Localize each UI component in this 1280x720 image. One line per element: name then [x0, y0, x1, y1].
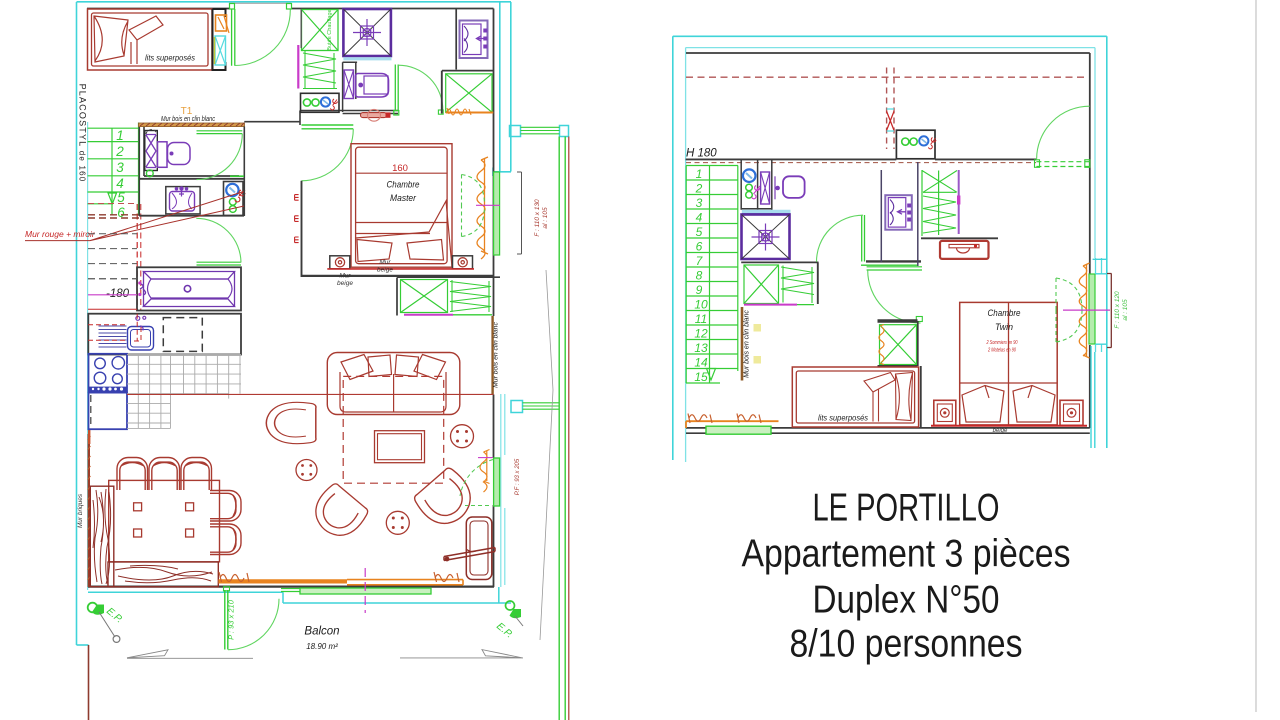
svg-text:2 Matelas en 90: 2 Matelas en 90 — [987, 348, 1016, 354]
svg-text:1: 1 — [116, 128, 124, 143]
svg-text:12: 12 — [694, 327, 708, 341]
svg-text:Butée Chauffage: Butée Chauffage — [327, 9, 333, 50]
svg-text:P.F : 93 x 205: P.F : 93 x 205 — [515, 458, 521, 495]
svg-text:4: 4 — [696, 211, 703, 225]
svg-text:lits superposés: lits superposés — [818, 413, 868, 423]
svg-text:lits superposés: lits superposés — [145, 53, 195, 63]
svg-text:al : 105: al : 105 — [1122, 299, 1129, 321]
svg-text:F : 110 x 130: F : 110 x 130 — [534, 199, 541, 237]
svg-text:beige: beige — [993, 428, 1008, 434]
svg-text:Chambre: Chambre — [387, 180, 420, 190]
svg-text:Mur bois en clin blanc: Mur bois en clin blanc — [744, 310, 751, 378]
svg-text:3: 3 — [696, 196, 703, 210]
svg-text:Master: Master — [390, 193, 417, 203]
svg-text:Mur: Mur — [379, 259, 391, 266]
svg-text:-180: -180 — [106, 288, 130, 300]
svg-text:9: 9 — [696, 283, 703, 297]
svg-text:Mur rouge + miroir: Mur rouge + miroir — [25, 229, 96, 239]
svg-text:beige: beige — [377, 267, 393, 274]
svg-text:11: 11 — [695, 312, 707, 326]
svg-text:Mur bois en clin blanc: Mur bois en clin blanc — [161, 114, 215, 123]
svg-text:al : 105: al : 105 — [542, 207, 549, 229]
svg-text:3: 3 — [116, 160, 124, 175]
svg-text:2: 2 — [115, 144, 124, 159]
svg-text:Mur: Mur — [339, 273, 351, 280]
svg-text:160: 160 — [392, 163, 408, 174]
svg-text:Mur bois en clin blanc: Mur bois en clin blanc — [493, 322, 500, 388]
svg-text:Appartement 3 pièces: Appartement 3 pièces — [742, 533, 1071, 576]
svg-text:2: 2 — [695, 182, 703, 196]
svg-text:Balcon: Balcon — [304, 626, 339, 638]
svg-text:Twin: Twin — [995, 322, 1013, 332]
svg-text:1: 1 — [696, 167, 703, 181]
svg-text:P : 93 x 210: P : 93 x 210 — [227, 599, 236, 640]
svg-text:15: 15 — [694, 370, 708, 384]
svg-text:5: 5 — [117, 190, 125, 205]
svg-text:beige: beige — [337, 280, 353, 287]
svg-text:Chambre: Chambre — [988, 308, 1021, 318]
svg-text:18.90 m²: 18.90 m² — [306, 642, 338, 651]
svg-text:PLACOSTYL de 160: PLACOSTYL de 160 — [78, 84, 88, 183]
svg-text:6: 6 — [696, 240, 703, 254]
svg-text:5: 5 — [696, 225, 703, 239]
svg-text:H 180: H 180 — [686, 148, 717, 160]
svg-text:F : 110 x 120: F : 110 x 120 — [1114, 291, 1121, 329]
svg-text:LE PORTILLO: LE PORTILLO — [813, 487, 1000, 530]
svg-text:Mur briques: Mur briques — [77, 493, 84, 528]
svg-text:Duplex N°50: Duplex N°50 — [813, 579, 1000, 622]
svg-text:2 Sommiers en 90: 2 Sommiers en 90 — [986, 340, 1018, 346]
svg-text:4: 4 — [116, 176, 124, 191]
svg-text:8/10 personnes: 8/10 personnes — [790, 623, 1023, 666]
svg-text:14: 14 — [694, 356, 708, 370]
svg-text:8: 8 — [696, 269, 703, 283]
svg-text:13: 13 — [694, 341, 708, 355]
svg-text:10: 10 — [694, 298, 708, 312]
